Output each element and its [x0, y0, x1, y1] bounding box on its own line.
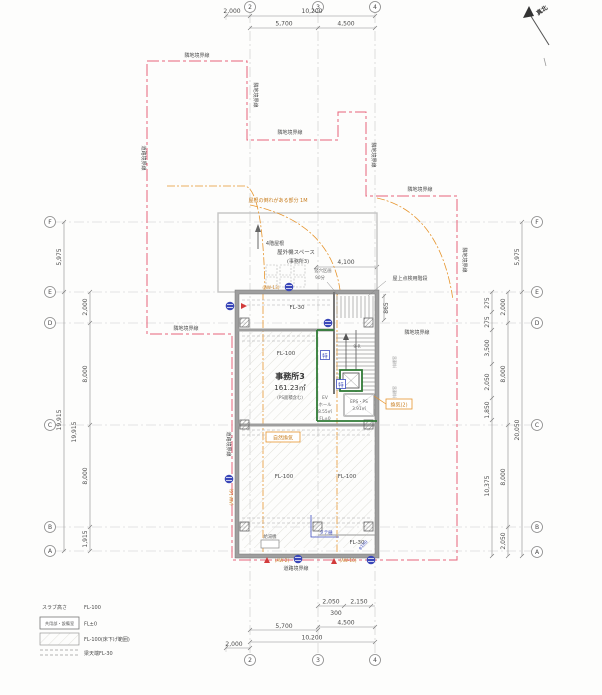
legend-common-box-label: 共用部・設備室 [45, 620, 74, 627]
boundary-label-adjacent: 隣地境界線 [184, 52, 209, 59]
dim-plan-4100: 4,100 [337, 259, 354, 266]
downpipe-label: タテ樋 [320, 529, 334, 536]
boundary-label-road: 道路境界線 [140, 145, 147, 170]
dim-right-2000: 2,000 [500, 298, 507, 315]
legend-common-value: FL±0 [84, 622, 97, 628]
smoke-window-note: 排煙窓 [391, 356, 397, 368]
fl100-label: FL-100 [275, 474, 294, 480]
boundary-label-road: 道路境界線 [225, 431, 232, 456]
dim-left-19915a: 19,915 [56, 409, 63, 430]
boundary-label-adjacent: 隣地境界線 [404, 329, 429, 336]
legend-lowered-value: FL-100(床下げ範囲) [84, 636, 130, 643]
legend: スラブ高さ FL-100 共用部・設備室 FL±0 FL-100(床下げ範囲) … [40, 604, 130, 657]
dim-right-8000b: 8,000 [500, 468, 507, 485]
ev-hall-label: ホール [319, 402, 333, 408]
dim-right-2050a: 2,050 [484, 373, 491, 390]
roof-slope-note: 屋根の倒れがある部分 1M [248, 197, 307, 204]
dim-top-5700: 5,700 [275, 21, 292, 28]
dim-top-2000: 2,000 [223, 8, 240, 15]
dim-right-275b: 275 [484, 316, 491, 328]
dim-left-1915: 1,915 [82, 530, 89, 547]
grid-row-B-right: B [535, 524, 539, 531]
boundary-label-adjacent: 隣地境界線 [461, 247, 468, 272]
grid-row-F-right: F [535, 219, 539, 226]
vent2-label: 換気(2) [390, 402, 407, 409]
fl100-label: FL-100 [277, 351, 296, 357]
up-arrow-icon [255, 224, 261, 232]
shaft-note-1: 竪穴区画 [314, 267, 331, 274]
dim-right-20050: 20,050 [514, 419, 521, 440]
office-area-note: (PS面積含む) [277, 394, 303, 401]
smoke-window-note: 排煙窓 [391, 386, 397, 398]
office-area: 161.23㎡ [274, 384, 306, 392]
grid-col-2-top: 2 [248, 4, 252, 11]
dim-bot-4500: 4,500 [337, 620, 354, 627]
dim-right-2050b: 2,050 [500, 532, 507, 549]
dim-right-1850: 1,850 [484, 401, 491, 418]
dim-right-275a: 275 [484, 297, 491, 309]
stair-note: 9-R [353, 344, 360, 350]
dim-right-5975: 5,975 [514, 248, 521, 265]
outdoor-unit-label: 屋外機スペース [277, 248, 315, 256]
ev-label: EV [322, 395, 328, 401]
grid-row-E-left: E [48, 289, 52, 296]
eps-label: EPS・PS [350, 399, 368, 405]
grid-col-4-top: 4 [373, 4, 377, 11]
aw2-label: (AW-2) [275, 558, 290, 564]
roof-area: 4階屋根 屋外機スペース (事務所3) [218, 213, 377, 292]
boundary-label-adjacent: 隣地境界線 [252, 82, 259, 107]
grid-col-2-bottom: 2 [248, 657, 252, 664]
legend-slab-label: スラブ高さ [42, 604, 67, 611]
fl30-top-label: FL-30 [289, 305, 305, 311]
fl100-label: FL-100 [338, 474, 357, 480]
aw13-label: (AW-13) [262, 285, 279, 291]
legend-slab-value: FL-100 [84, 605, 101, 611]
boundary-label-adjacent: 隣地境界線 [407, 186, 432, 193]
dim-bot-2000: 2,000 [225, 641, 242, 648]
floor-plan-drawing: 2 3 4 2 3 4 F E D C B A F E D C B A 2,0 [0, 0, 602, 695]
north-arrow-icon [523, 6, 534, 18]
building: 9-R [235, 290, 379, 558]
outdoor-unit-sub-label: (事務所3) [287, 258, 309, 265]
boundary-label-adjacent: 隣地境界線 [173, 325, 198, 332]
grid-row-B-left: B [48, 524, 52, 531]
ev-hall-area: 8.55㎡ [318, 408, 333, 415]
water-heater: 給湯機 [261, 533, 279, 548]
roof-stair-label: 屋上点検用階段 [392, 275, 427, 282]
toku-badge-label: 特 [322, 352, 328, 360]
dim-right-8000a: 8,000 [500, 365, 507, 382]
dim-bot-2150: 2,150 [350, 599, 367, 606]
toku-badge-label: 特 [338, 381, 344, 389]
grid-row-C-right: C [535, 422, 539, 429]
grid-row-D-right: D [535, 320, 540, 327]
dim-left-5975: 5,975 [56, 248, 63, 265]
office-name: 事務所3 [275, 371, 305, 381]
grid-row-E-right: E [535, 289, 539, 296]
boundary-label-adjacent: 隣地境界線 [277, 129, 302, 136]
north-arrow: 真北 [523, 4, 549, 66]
aw10-label: (AW-10) [339, 558, 356, 564]
grid-row-D-left: D [48, 320, 53, 327]
dim-top-4500: 4,500 [337, 21, 354, 28]
dim-right-3500: 3,500 [484, 339, 491, 356]
dimension-texts: 2,000 10,200 5,700 4,500 2,050 2,150 300… [56, 8, 521, 648]
dim-bot-300: 300 [330, 610, 342, 617]
grid-row-C-left: C [48, 422, 52, 429]
dim-top-10200: 10,200 [302, 8, 323, 15]
water-heater-label: 給湯機 [264, 533, 278, 540]
grid-col-4-bottom: 4 [373, 657, 377, 664]
dim-bot-10200: 10,200 [302, 635, 323, 642]
eps-area: 3.91㎡ [352, 405, 367, 412]
dim-left-8000b: 8,000 [82, 467, 89, 484]
dim-bot-5700: 5,700 [275, 623, 292, 630]
shaft-note-2: 90分 [315, 274, 325, 281]
boundary-label-road: 道路境界線 [283, 565, 308, 572]
floor-plan-page: 2 3 4 2 3 4 F E D C B A F E D C B A 2,0 [0, 0, 602, 695]
north-label: 真北 [535, 4, 549, 17]
dim-plan-865: 865 [383, 302, 390, 314]
dim-right-10375: 10,375 [484, 475, 491, 496]
dim-left-2000: 2,000 [82, 298, 89, 315]
dim-left-19915b: 19,915 [71, 421, 78, 442]
legend-beam-value: 梁天端FL-30 [84, 650, 113, 657]
dim-left-8000a: 8,000 [82, 365, 89, 382]
roof-4f-label: 4階屋根 [266, 240, 284, 247]
boundary-label-adjacent: 隣地境界線 [370, 142, 377, 167]
aw16-label: (AW-16) [229, 488, 235, 505]
grid-row-F-left: F [48, 219, 52, 226]
grid-col-3-bottom: 3 [316, 657, 320, 664]
dim-bot-2050: 2,050 [322, 599, 339, 606]
natural-vent-label: 自然換気 [273, 435, 293, 442]
ev-hall-level: FL±0 [319, 416, 330, 422]
